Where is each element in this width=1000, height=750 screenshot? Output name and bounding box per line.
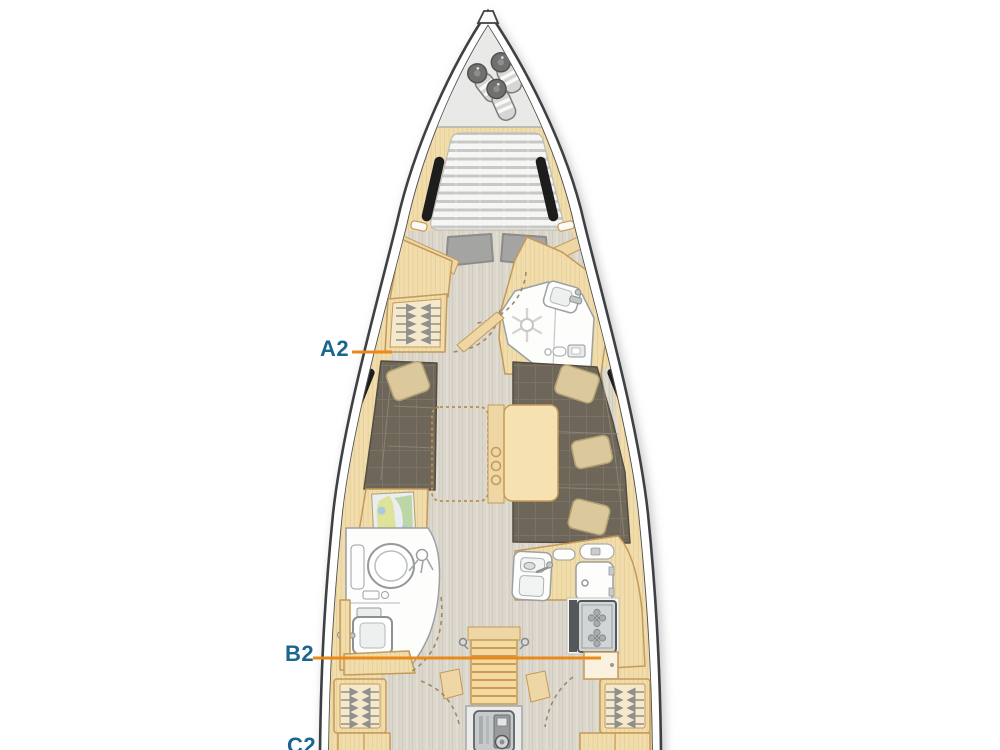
engine-compartment — [466, 706, 522, 750]
layout-label-b2: B2 — [285, 641, 314, 666]
layout-label-c2: C2 — [287, 733, 316, 750]
fridge-icon — [576, 562, 614, 600]
yacht-layout-figure: A2 B2 C2 — [0, 0, 1000, 750]
table-fixed-leaf — [504, 405, 558, 501]
aft-port-wardrobe — [334, 679, 390, 750]
galley-aft-cabinet — [584, 652, 618, 679]
yacht-layout-drawing: A2 B2 C2 — [0, 0, 1000, 750]
table-center-rail — [488, 405, 504, 503]
galley-tray — [553, 549, 575, 560]
bow-fitting — [478, 11, 498, 23]
companionway-threshold — [468, 627, 520, 640]
stove-icon — [567, 598, 619, 654]
galley-sink-icon — [512, 551, 553, 601]
aft-head-counter — [344, 651, 415, 675]
layout-label-a2: A2 — [320, 336, 349, 361]
galley-tray — [580, 544, 614, 559]
